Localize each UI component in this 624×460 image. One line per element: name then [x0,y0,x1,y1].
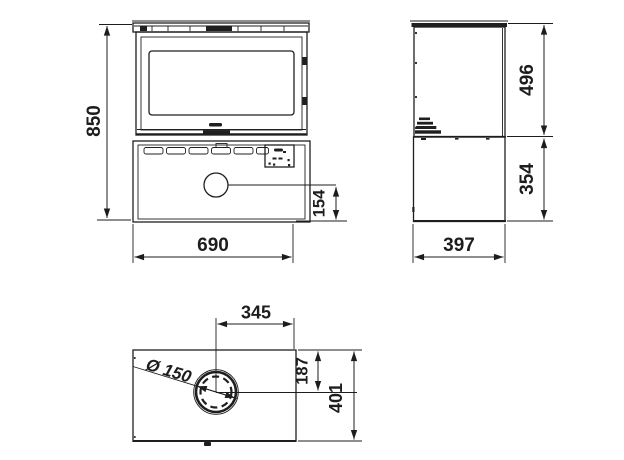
door-hinge-bottom [303,97,308,105]
lower-panel [133,141,310,222]
dim-side-upper-height: 496 [507,24,553,137]
stove-technical-drawing: 850 154 690 [0,0,624,460]
side-view: 496 354 397 [410,21,553,263]
dim-850-label: 850 [84,105,105,137]
top-plate [132,21,310,32]
dim-401-label: 401 [326,383,346,413]
air-control-knob [204,173,228,197]
top-view: Ø 150 345 187 401 [133,303,363,447]
dim-345-label: 345 [241,303,271,323]
dim-496-label: 496 [517,64,538,96]
dim-side-depth: 397 [413,224,505,263]
control-panel [265,145,294,167]
front-view: 850 154 690 [84,21,347,263]
dim-flue-diameter: Ø 150 [133,355,238,399]
stove-door [136,32,307,135]
dim-flue-offset-horizontal: 345 [218,303,295,350]
brand-logo [209,123,222,127]
dim-front-width: 690 [133,224,293,263]
door-glass [149,51,294,115]
drawing-svg: 850 154 690 [0,0,624,460]
slot-tab [216,144,227,148]
side-vent-louvers [415,118,441,134]
dim-front-height: 850 [84,25,132,221]
top-vent-dark-segment [206,27,232,32]
dim-diameter-label: Ø 150 [144,355,194,387]
dim-side-lower-height: 354 [507,139,553,222]
dim-outlet-height: 154 [228,185,347,221]
dim-354-label: 354 [517,163,538,195]
door-hinge-top [303,57,308,65]
dim-187-label: 187 [294,357,312,385]
dim-397-label: 397 [443,235,475,256]
dim-154-label: 154 [311,189,329,217]
dim-690-label: 690 [197,235,229,256]
side-lower-body [414,137,506,222]
